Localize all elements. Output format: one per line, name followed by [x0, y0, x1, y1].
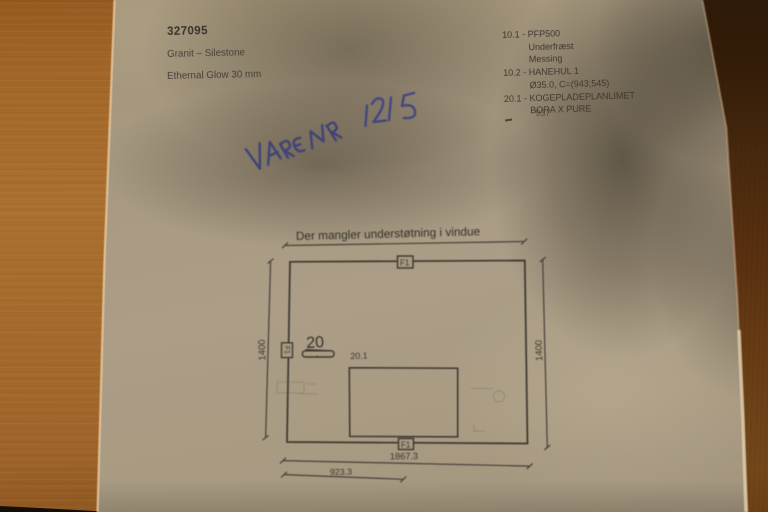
svg-text:1867.3: 1867.3	[390, 451, 418, 461]
svg-text:1400: 1400	[534, 340, 546, 362]
svg-text:1400: 1400	[257, 339, 269, 361]
svg-text:F1: F1	[400, 259, 410, 268]
svg-text:20.1: 20.1	[350, 351, 367, 361]
svg-text:Der mangler understøtning i vi: Der mangler understøtning i vindue	[296, 224, 481, 243]
svg-text:F1: F1	[401, 441, 411, 450]
svg-text:923.3: 923.3	[330, 467, 352, 477]
svg-text:F1: F1	[283, 346, 290, 354]
